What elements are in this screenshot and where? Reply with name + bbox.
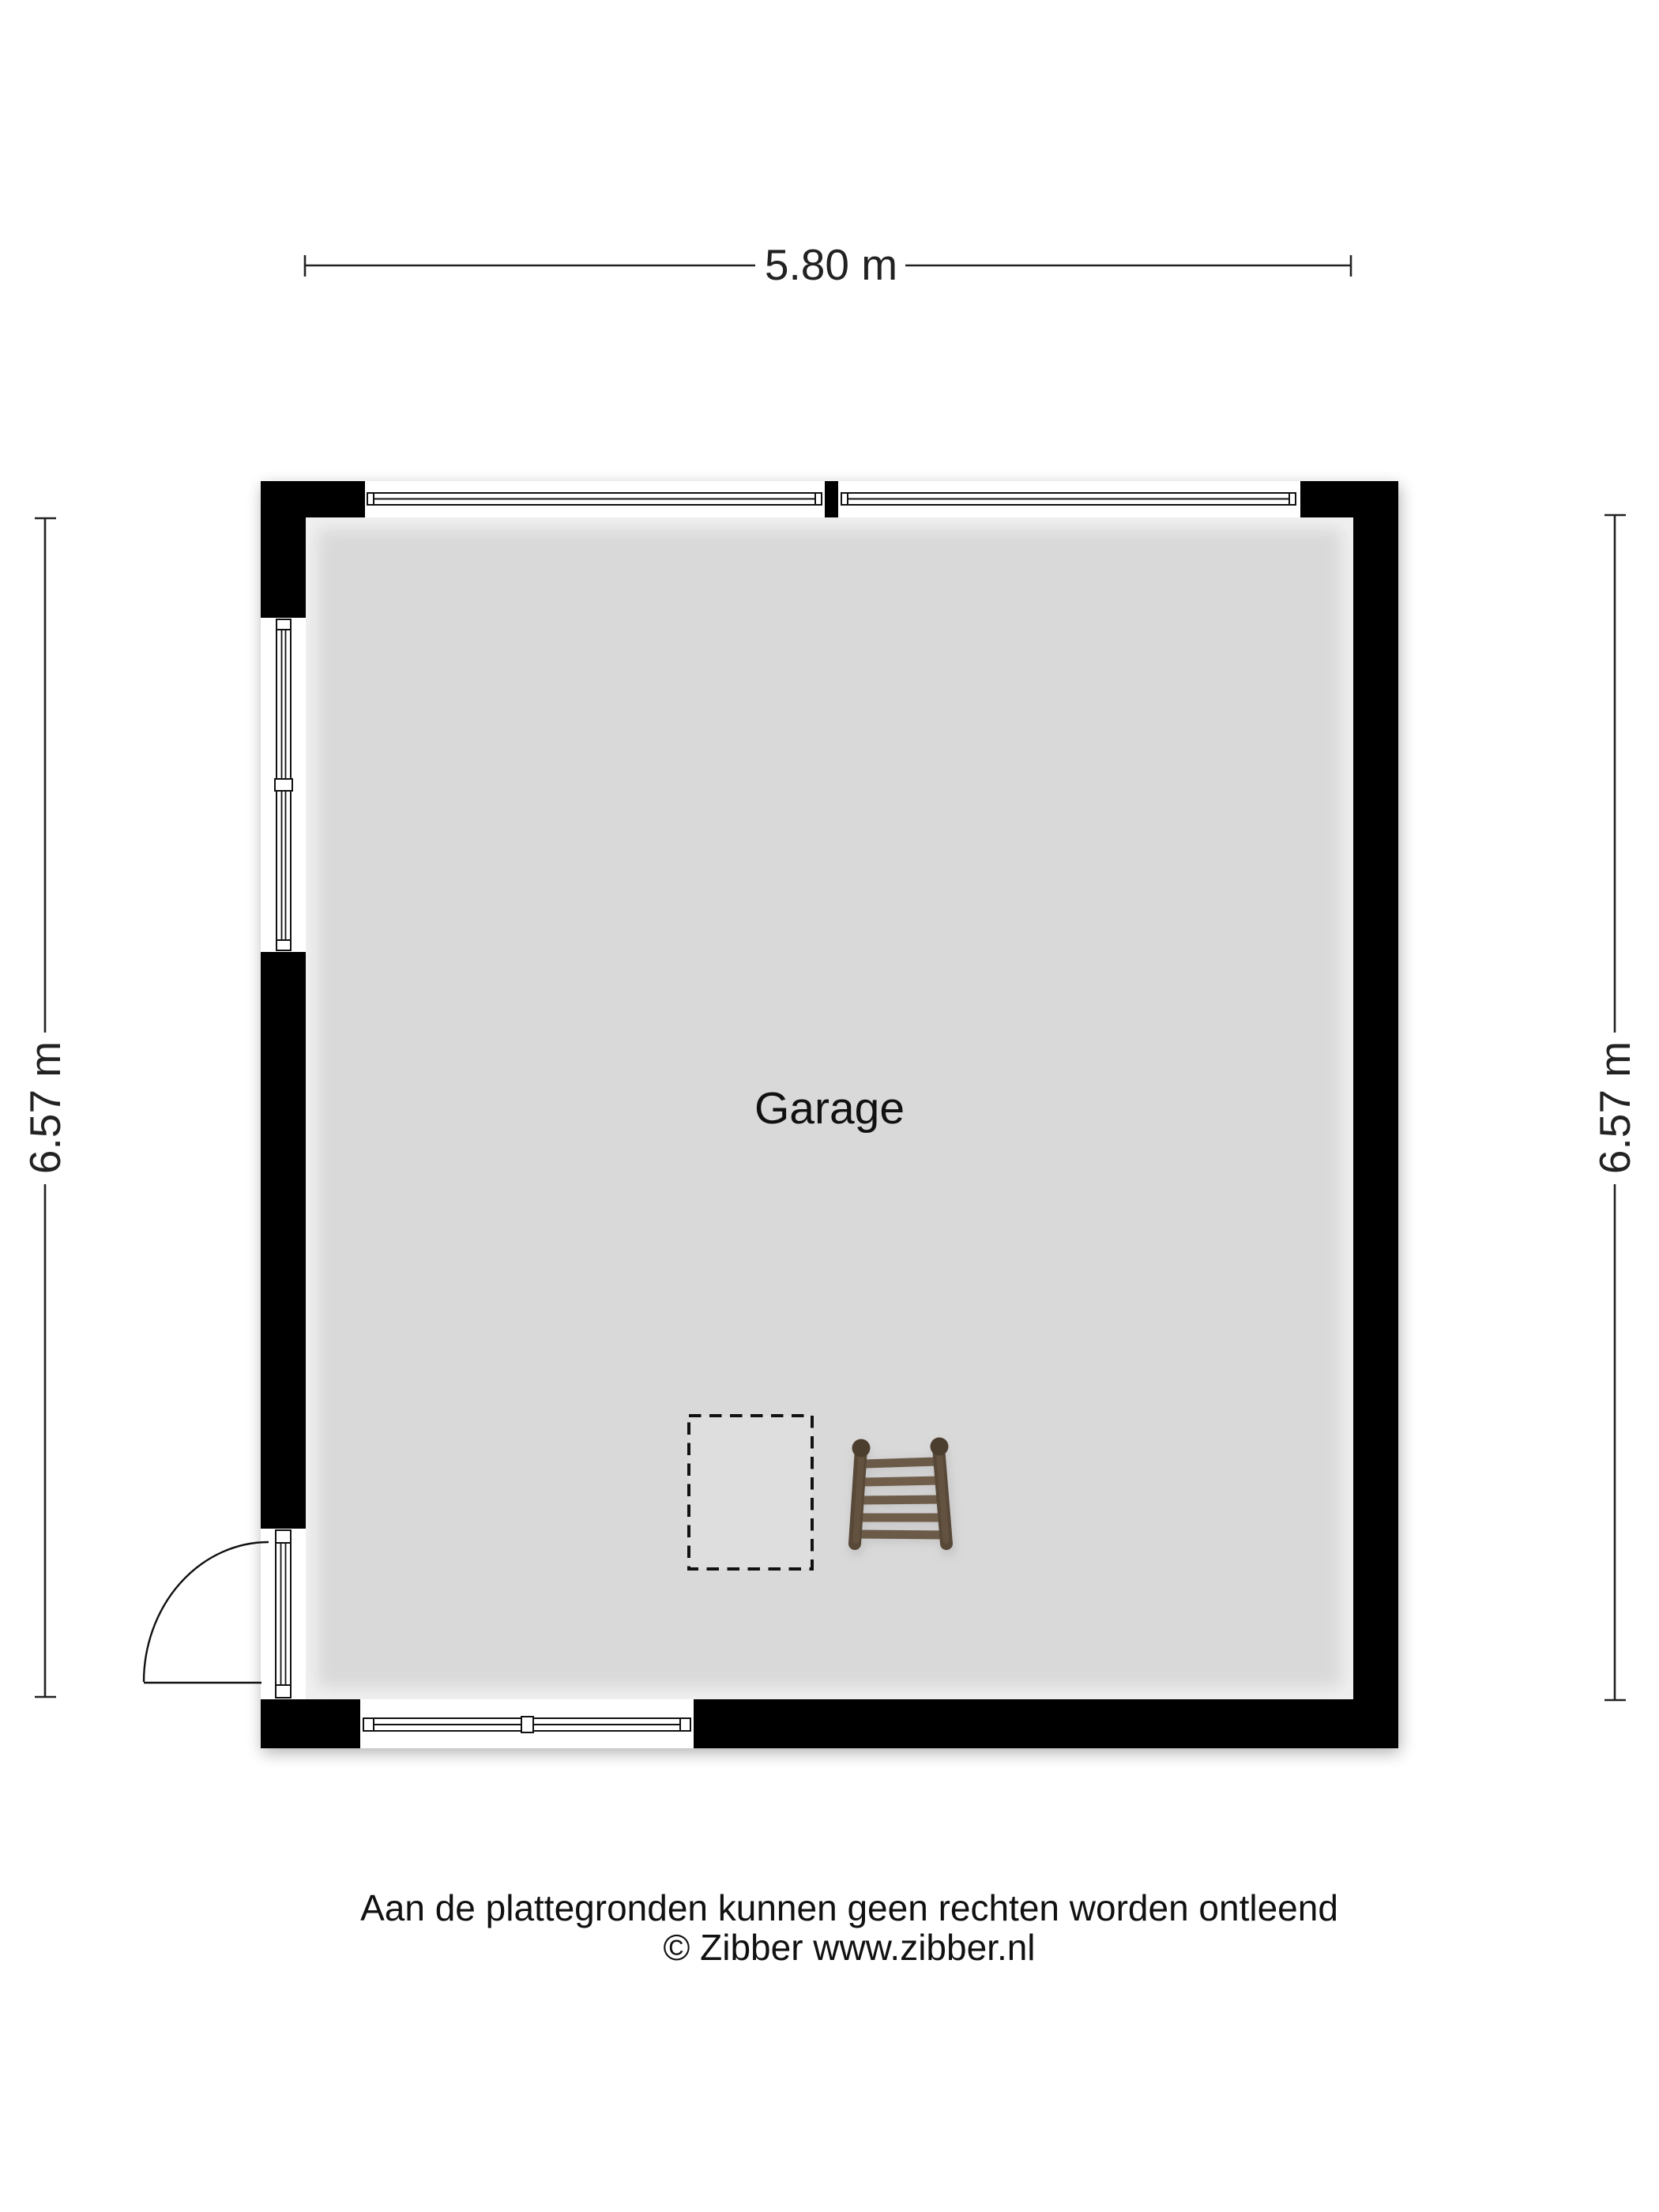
svg-text:© Zibber www.zibber.nl: © Zibber www.zibber.nl <box>663 1927 1035 1968</box>
svg-text:Aan de plattegronden kunnen ge: Aan de plattegronden kunnen geen rechten… <box>360 1887 1338 1928</box>
svg-text:Garage: Garage <box>754 1083 905 1134</box>
svg-text:6.57 m: 6.57 m <box>1590 1041 1639 1174</box>
svg-text:6.57 m: 6.57 m <box>21 1041 70 1174</box>
svg-text:5.80 m: 5.80 m <box>765 240 897 289</box>
